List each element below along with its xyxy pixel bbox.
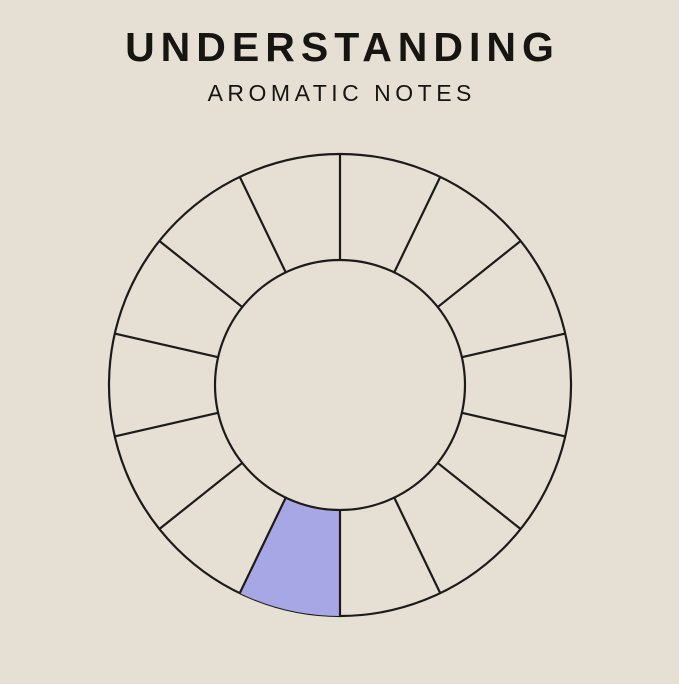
segment-divider (115, 413, 218, 437)
segment-divider (240, 177, 286, 273)
segment-divider (438, 463, 521, 529)
segment-divider (394, 177, 440, 273)
segment-divider (159, 241, 242, 307)
page-title: UNDERSTANDING (0, 24, 679, 71)
segment-divider (115, 334, 218, 358)
segment-highlight-citrus (240, 498, 340, 616)
segment-divider (462, 413, 565, 437)
page-subtitle: AROMATIC NOTES (0, 80, 679, 107)
segment-divider (394, 498, 440, 594)
segment-divider (462, 334, 565, 358)
poster: UNDERSTANDING AROMATIC NOTES (0, 0, 679, 679)
header: UNDERSTANDING AROMATIC NOTES (0, 24, 679, 107)
segment-divider (438, 241, 521, 307)
segment-divider (159, 463, 242, 529)
wheel-inner-circle (215, 260, 465, 510)
